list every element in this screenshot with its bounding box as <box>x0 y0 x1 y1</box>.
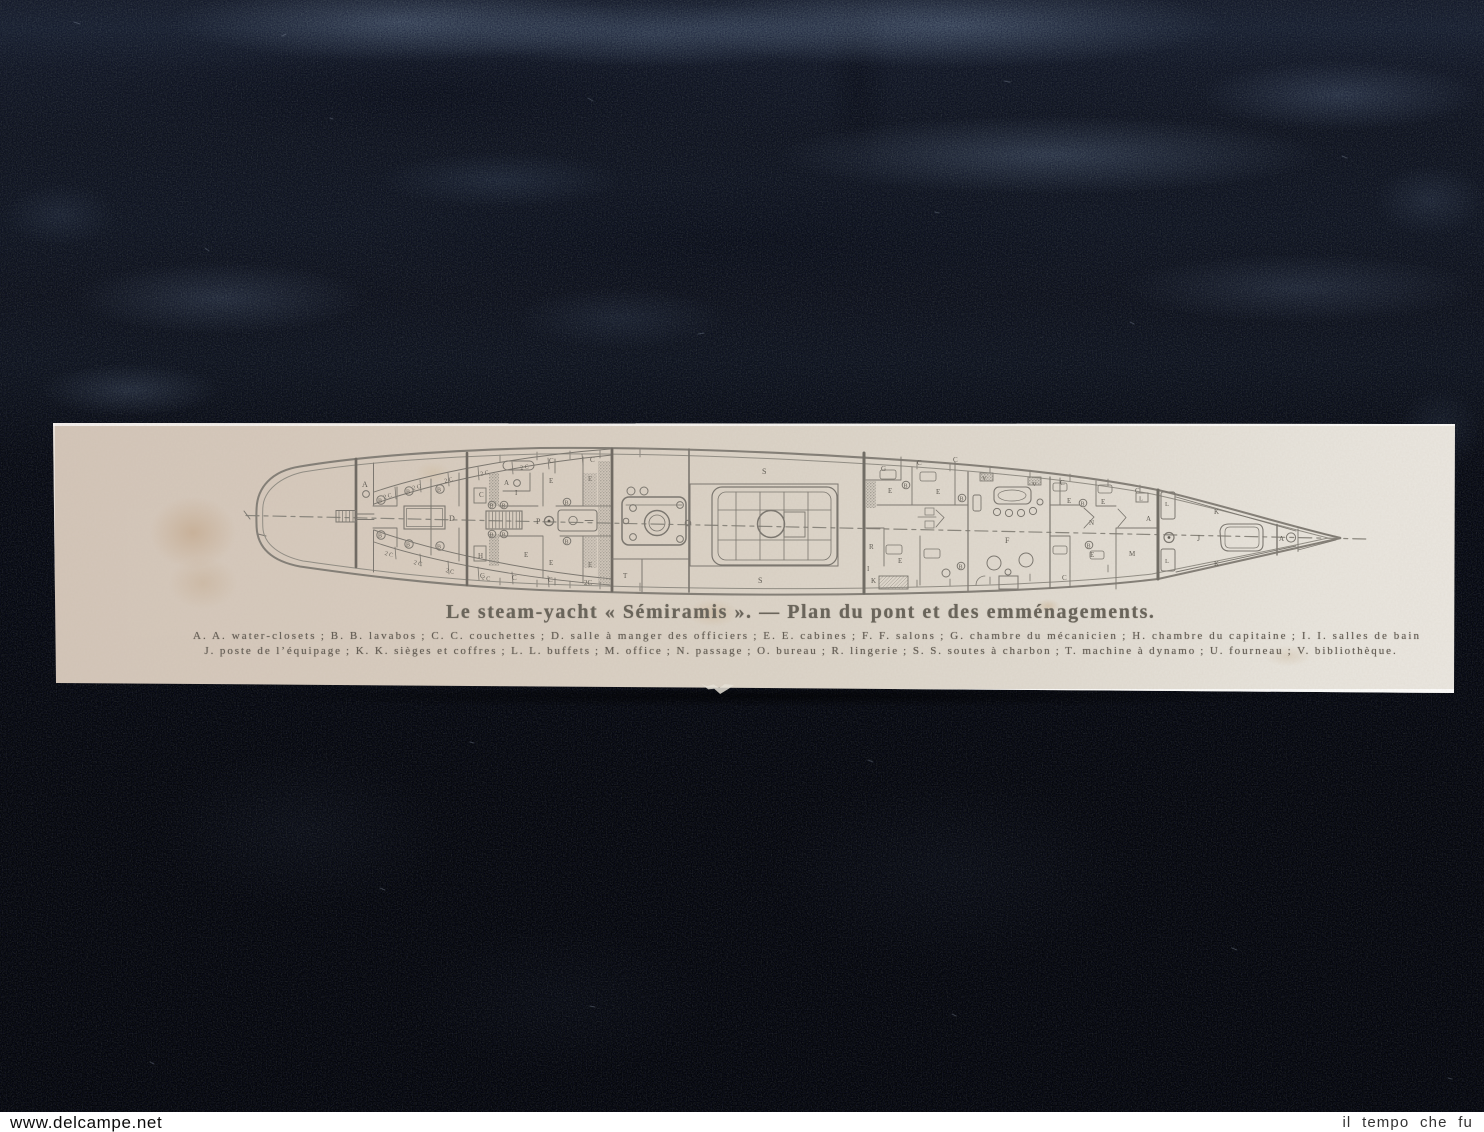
svg-text:C: C <box>917 459 922 467</box>
svg-text:C: C <box>1060 479 1065 487</box>
svg-text:B: B <box>378 499 382 505</box>
svg-text:K: K <box>1214 560 1219 568</box>
svg-text:E: E <box>524 551 528 559</box>
svg-text:A: A <box>362 480 368 489</box>
svg-text:B: B <box>959 565 963 571</box>
svg-text:E: E <box>1090 551 1094 559</box>
svg-text:E: E <box>898 557 902 565</box>
svg-text:B: B <box>378 534 382 540</box>
svg-text:S: S <box>762 467 766 476</box>
svg-text:L: L <box>1139 496 1143 503</box>
svg-text:B: B <box>565 540 569 546</box>
svg-text:B: B <box>437 545 441 551</box>
svg-text:B: B <box>490 504 494 510</box>
svg-text:J: J <box>1197 534 1200 543</box>
svg-text:B: B <box>502 533 506 539</box>
svg-text:B: B <box>904 484 908 490</box>
svg-text:E: E <box>549 477 553 485</box>
svg-text:S: S <box>758 576 762 585</box>
svg-text:G: G <box>881 465 886 473</box>
svg-text:M: M <box>1129 550 1136 558</box>
svg-text:V: V <box>1032 481 1037 488</box>
svg-text:L: L <box>1165 558 1169 565</box>
svg-text:2 C: 2 C <box>413 560 423 568</box>
svg-text:B: B <box>960 497 964 503</box>
svg-text:B: B <box>1087 544 1091 550</box>
svg-text:R: R <box>869 543 874 551</box>
svg-text:T: T <box>623 572 628 580</box>
svg-text:H: H <box>478 552 483 560</box>
svg-text:C: C <box>548 576 553 584</box>
svg-text:2 C: 2 C <box>444 477 454 485</box>
svg-text:K: K <box>871 577 876 585</box>
svg-text:I: I <box>867 565 870 573</box>
svg-text:C: C <box>1062 574 1067 582</box>
svg-text:P: P <box>536 517 541 526</box>
svg-text:B: B <box>502 504 506 510</box>
svg-text:I: I <box>515 489 518 497</box>
svg-text:B: B <box>1081 502 1085 508</box>
svg-text:C: C <box>480 572 485 580</box>
svg-text:E: E <box>888 487 892 495</box>
svg-text:C: C <box>479 491 484 499</box>
svg-text:B: B <box>565 501 569 507</box>
svg-text:2 C: 2 C <box>384 551 394 559</box>
svg-text:A: A <box>1279 535 1284 543</box>
svg-text:B: B <box>406 490 410 496</box>
svg-text:A: A <box>504 479 509 487</box>
svg-text:E: E <box>936 488 940 496</box>
svg-text:B: B <box>406 543 410 549</box>
svg-text:2C: 2C <box>584 579 593 587</box>
svg-text:F: F <box>1005 536 1010 545</box>
svg-text:K: K <box>1214 508 1219 516</box>
svg-text:C: C <box>512 574 517 582</box>
svg-text:B: B <box>437 488 441 494</box>
svg-text:A: A <box>1146 515 1151 523</box>
svg-text:E: E <box>1067 497 1071 505</box>
svg-text:L: L <box>1165 501 1169 508</box>
svg-text:C: C <box>590 456 595 464</box>
svg-text:D: D <box>449 514 455 523</box>
svg-text:E: E <box>1101 498 1105 506</box>
svg-text:2 C: 2 C <box>445 568 455 576</box>
svg-text:B: B <box>490 533 494 539</box>
svg-text:C: C <box>953 456 958 464</box>
svg-text:V: V <box>982 475 987 482</box>
svg-text:C: C <box>549 457 554 465</box>
svg-text:E: E <box>549 559 553 567</box>
svg-text:2 C: 2 C <box>480 470 490 478</box>
